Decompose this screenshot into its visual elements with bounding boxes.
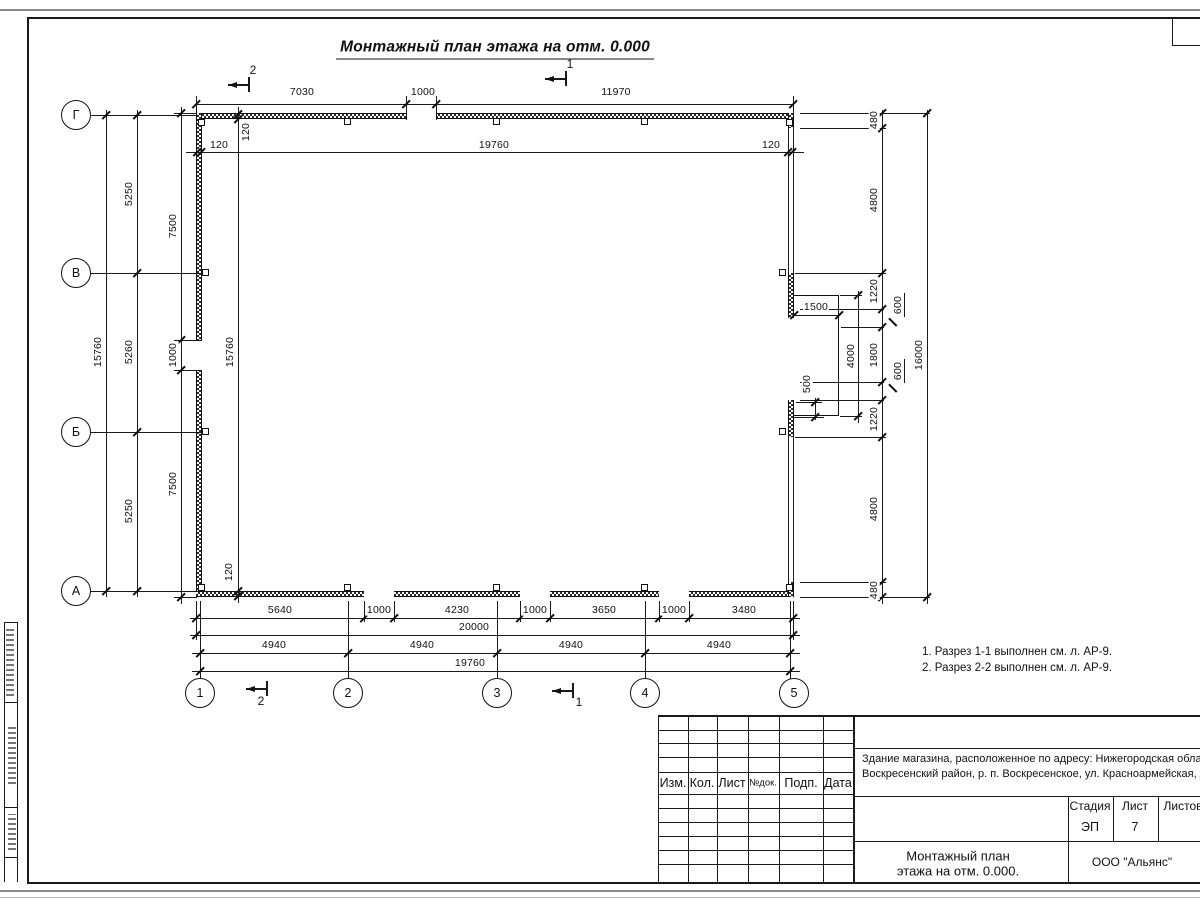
section-marker-label: 1 bbox=[576, 695, 583, 709]
axis-circle-col-4: 4 bbox=[630, 678, 660, 708]
axis-circle-col-5: 5 bbox=[779, 678, 809, 708]
column-mark bbox=[786, 584, 793, 591]
dimension-label: 4940 bbox=[261, 640, 287, 651]
dimension-label: 4230 bbox=[444, 605, 470, 616]
dimension-line bbox=[800, 400, 884, 401]
dimension-line bbox=[90, 273, 203, 274]
axis-circle-col-3: 3 bbox=[482, 678, 512, 708]
outer-border-bottom bbox=[0, 890, 1200, 892]
tb-header-podp: Подп. bbox=[784, 776, 817, 790]
note-2: 2. Разрез 2-2 выполнен см. л. АР-9. bbox=[922, 662, 1112, 674]
wall-bottom-segment bbox=[689, 591, 794, 597]
dimension-line bbox=[795, 437, 886, 438]
dimension-line bbox=[904, 359, 905, 383]
sheet-label: Лист bbox=[1122, 799, 1148, 813]
dimension-label: 19760 bbox=[454, 658, 486, 669]
dimension-line bbox=[137, 110, 138, 597]
section-marker-label: 2 bbox=[250, 63, 257, 77]
dimension-label: 1000 bbox=[366, 605, 392, 616]
inventory-strip-line bbox=[17, 622, 18, 882]
dimension-label: 600 bbox=[893, 295, 904, 315]
dimension-label: 1800 bbox=[869, 342, 880, 368]
dimension-line bbox=[436, 96, 437, 120]
dimension-line bbox=[841, 327, 884, 328]
dimension-line bbox=[181, 107, 182, 604]
dimension-label: 500 bbox=[802, 374, 813, 394]
dimension-label: 7030 bbox=[289, 87, 315, 98]
dimension-line bbox=[800, 113, 930, 114]
inventory-strip-text bbox=[8, 726, 16, 784]
section-tick bbox=[266, 681, 268, 696]
dimension-label: 1000 bbox=[661, 605, 687, 616]
section-arrowhead bbox=[545, 76, 554, 82]
dimension-label: 120 bbox=[224, 562, 235, 582]
column-mark bbox=[493, 584, 500, 591]
dimension-line bbox=[796, 402, 822, 403]
sheets-label: Листов bbox=[1164, 799, 1200, 813]
dimension-line bbox=[794, 315, 840, 316]
column-mark bbox=[786, 119, 793, 126]
wall-top-segment bbox=[196, 113, 406, 119]
dimension-line bbox=[190, 618, 800, 619]
wall-bottom-segment bbox=[550, 591, 659, 597]
sheet-value: 7 bbox=[1132, 820, 1139, 834]
dimension-label: 480 bbox=[869, 110, 880, 130]
dimension-label: 4800 bbox=[869, 187, 880, 213]
dimension-line bbox=[795, 273, 886, 274]
dimension-label: 5250 bbox=[124, 498, 135, 524]
section-tick bbox=[248, 77, 250, 92]
column-mark bbox=[202, 428, 209, 435]
stage-label: Стадия bbox=[1070, 799, 1111, 813]
tick-mark bbox=[889, 318, 898, 327]
dimension-line bbox=[406, 96, 407, 120]
dimension-line bbox=[90, 432, 203, 433]
column-mark bbox=[779, 269, 786, 276]
dimension-line bbox=[106, 110, 107, 597]
dimension-label: 1000 bbox=[410, 87, 436, 98]
project-address-line1: Здание магазина, расположенное по адресу… bbox=[862, 753, 1200, 765]
wall-bottom-segment bbox=[196, 591, 364, 597]
column-mark bbox=[779, 428, 786, 435]
column-mark bbox=[202, 269, 209, 276]
dimension-line bbox=[186, 152, 804, 153]
dimension-label: 3650 bbox=[591, 605, 617, 616]
dimension-label: 1220 bbox=[869, 278, 880, 304]
dimension-label: 3480 bbox=[731, 605, 757, 616]
dimension-label: 120 bbox=[241, 122, 252, 142]
dimension-label: 16000 bbox=[914, 339, 925, 371]
axis-circle-row-Б: Б bbox=[61, 417, 91, 447]
outer-border-top bbox=[0, 9, 1200, 11]
axis-circle-row-Г: Г bbox=[61, 100, 91, 130]
inventory-strip-line bbox=[4, 857, 18, 858]
dimension-line bbox=[927, 110, 928, 604]
column-mark bbox=[641, 584, 648, 591]
dimension-label: 4940 bbox=[706, 640, 732, 651]
dimension-line bbox=[497, 601, 498, 679]
inventory-strip-line bbox=[4, 622, 18, 623]
frame-bottom bbox=[27, 882, 1200, 884]
axis-circle-row-В: В bbox=[61, 258, 91, 288]
section-tick bbox=[565, 71, 567, 86]
dimension-label: 120 bbox=[209, 140, 229, 151]
dimension-line bbox=[800, 597, 930, 598]
dimension-line bbox=[794, 417, 824, 418]
corner-stamp-left bbox=[1172, 17, 1173, 45]
inventory-strip-text bbox=[8, 814, 16, 850]
tb-header-list: Лист bbox=[718, 776, 745, 790]
dimension-label: 5250 bbox=[124, 181, 135, 207]
dimension-label: 4940 bbox=[558, 640, 584, 651]
section-arrowhead bbox=[228, 82, 237, 88]
dimension-label: 120 bbox=[761, 140, 781, 151]
axis-circle-row-А: А bbox=[61, 576, 91, 606]
dimension-label: 1000 bbox=[522, 605, 548, 616]
inventory-strip-line bbox=[4, 807, 18, 808]
axis-circle-col-1: 1 bbox=[185, 678, 215, 708]
dimension-label: 4000 bbox=[846, 343, 857, 369]
doc-title-line2: этажа на отм. 0.000. bbox=[897, 864, 1019, 879]
dimension-label: 15760 bbox=[93, 336, 104, 368]
dimension-line bbox=[348, 601, 349, 679]
axis-circle-col-2: 2 bbox=[333, 678, 363, 708]
dimension-line bbox=[645, 601, 646, 679]
dimension-label: 1500 bbox=[803, 302, 829, 313]
note-1: 1. Разрез 1-1 выполнен см. л. АР-9. bbox=[922, 646, 1112, 658]
inventory-strip-line bbox=[4, 622, 5, 882]
dimension-line bbox=[882, 110, 883, 604]
outer-border-bottom2 bbox=[0, 897, 1200, 898]
dimension-label: 19760 bbox=[478, 140, 510, 151]
frame-left bbox=[27, 17, 29, 883]
dimension-label: 5640 bbox=[267, 605, 293, 616]
section-arrowhead bbox=[552, 688, 561, 694]
tick-mark bbox=[889, 384, 898, 393]
dimension-line bbox=[238, 107, 239, 603]
dimension-label: 1000 bbox=[168, 342, 179, 368]
dimension-line bbox=[196, 96, 197, 114]
drawing-title: Монтажный план этажа на отм. 0.000 bbox=[336, 39, 654, 60]
wall-top-segment bbox=[436, 113, 794, 119]
dimension-line bbox=[192, 671, 800, 672]
column-mark bbox=[344, 584, 351, 591]
dimension-line bbox=[793, 96, 794, 114]
column-mark bbox=[641, 118, 648, 125]
section-marker-label: 1 bbox=[567, 57, 574, 71]
drawing-sheet: Монтажный план этажа на отм. 0.000 1. Ра… bbox=[0, 0, 1200, 900]
section-arrowhead bbox=[246, 686, 255, 692]
dimension-line bbox=[904, 293, 905, 317]
doc-title-line1: Монтажный план bbox=[906, 849, 1010, 864]
wall-bottom-segment bbox=[394, 591, 520, 597]
stage-value: ЭП bbox=[1081, 820, 1099, 834]
dimension-line bbox=[858, 291, 859, 423]
dimension-label: 5260 bbox=[124, 339, 135, 365]
frame-top bbox=[27, 17, 1200, 19]
section-tick bbox=[572, 683, 574, 698]
dimension-label: 480 bbox=[869, 580, 880, 600]
dimension-label: 11970 bbox=[600, 87, 631, 98]
tb-header-kol: Кол. bbox=[690, 776, 715, 790]
corner-stamp-bottom bbox=[1172, 45, 1200, 46]
dimension-line bbox=[190, 635, 800, 636]
wall-left-segment bbox=[196, 370, 202, 597]
dimension-label: 20000 bbox=[458, 622, 490, 633]
dimension-label: 15760 bbox=[225, 336, 236, 368]
column-mark bbox=[198, 119, 205, 126]
dimension-label: 1220 bbox=[869, 406, 880, 432]
tb-header-izm: Изм. bbox=[660, 776, 687, 790]
column-mark bbox=[344, 118, 351, 125]
inventory-strip-text bbox=[6, 628, 14, 696]
dimension-label: 7500 bbox=[168, 213, 179, 239]
tb-header-ndok: №док. bbox=[749, 778, 777, 789]
project-address-line2: Воскресенский район, р. п. Воскресенское… bbox=[862, 768, 1200, 780]
inventory-strip-line bbox=[4, 702, 18, 703]
company-name: ООО "Альянс" bbox=[1092, 855, 1172, 869]
tb-header-data: Дата bbox=[824, 776, 852, 790]
column-mark bbox=[198, 584, 205, 591]
dimension-label: 600 bbox=[893, 361, 904, 381]
dimension-label: 4800 bbox=[869, 496, 880, 522]
dimension-label: 4940 bbox=[409, 640, 435, 651]
dimension-label: 7500 bbox=[168, 471, 179, 497]
window-right bbox=[788, 437, 794, 582]
column-mark bbox=[493, 118, 500, 125]
dimension-line bbox=[196, 104, 794, 105]
section-marker-label: 2 bbox=[258, 694, 265, 708]
